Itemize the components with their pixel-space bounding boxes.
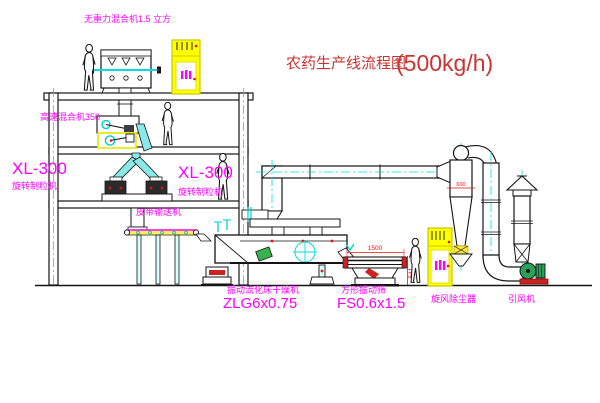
indicator-dot — [109, 187, 112, 190]
dryer-exhaust-duct — [256, 160, 452, 228]
gravity-free-mixer-machine — [90, 50, 161, 93]
label-belt-conveyor: 皮带输送机 — [136, 206, 181, 217]
indicator-dot — [110, 139, 113, 142]
conveyor-discharge — [196, 234, 211, 241]
worker-figure — [409, 238, 421, 282]
label-granulator-mid: 旋转制粒机 — [178, 186, 223, 197]
indicator-dot — [195, 45, 198, 48]
cabinet-indicator — [443, 261, 445, 270]
label-dryer-model: ZLG6x0.75 — [223, 295, 297, 312]
label-sieve-name: 方形振动筛 — [341, 284, 386, 295]
drawing-surface: 1500 541 600 — [0, 0, 600, 403]
cad-flow-diagram: 1500 541 600 — [0, 0, 600, 403]
indicator-dot — [120, 187, 123, 190]
cabinet-indicator — [181, 71, 183, 79]
label-cyclone: 旋风除尘器 — [431, 293, 476, 304]
indicator-dot — [161, 187, 164, 190]
indicator-dot — [150, 187, 153, 190]
high-speed-mixer-machine — [97, 100, 152, 151]
control-cabinet-right — [428, 228, 452, 286]
cyclone-inlet — [437, 161, 451, 183]
cabinet-indicator — [435, 261, 437, 270]
indicator-dot — [321, 270, 324, 273]
label-gravity-mixer: 无重力混合机1.5 立方 — [84, 13, 171, 24]
top-floor-beam — [44, 93, 253, 100]
indicator-dot — [271, 240, 274, 243]
label-high-speed-mixer: 高速混合机350 — [40, 111, 100, 122]
cabinet-indicator — [439, 260, 441, 270]
induced-draft-fan-machine — [520, 263, 548, 284]
cabinet-indicator — [185, 70, 187, 79]
dimension-1500: 1500 — [368, 245, 383, 252]
drawing-title: 农药生产线流程图 (500kg/h) — [286, 50, 493, 76]
indicator-dot — [193, 78, 196, 81]
label-dryer-name: 振动流化床干燥机 — [227, 284, 299, 295]
label-xl300-left: XL-300 — [12, 159, 67, 178]
label-xl300-mid: XL-300 — [178, 163, 233, 182]
fan-base — [520, 279, 548, 284]
label-fan: 引风机 — [508, 293, 535, 304]
rotary-granulator-machine — [102, 153, 172, 201]
conveyor-leg — [156, 235, 160, 284]
dimension-600: 600 — [456, 182, 465, 188]
cabinet-indicator — [189, 71, 191, 79]
cyclone-cone — [450, 197, 472, 246]
title-text: 农药生产线流程图 — [286, 55, 406, 72]
conveyor-leg — [137, 235, 141, 284]
belt-conveyor-machine — [124, 208, 211, 284]
vibrating-sieve-machine: 1500 541 — [343, 245, 415, 287]
label-granulator-left: 旋转制粒机 — [12, 180, 57, 191]
fluid-bed-dryer-machine — [201, 207, 358, 286]
fan-motor — [536, 264, 545, 278]
worker-figure — [83, 44, 95, 90]
label-sieve-model: FS0.6x1.5 — [337, 295, 405, 312]
control-cabinet-top — [172, 40, 200, 94]
stack-cap — [507, 176, 537, 190]
indicator-dot — [331, 240, 334, 243]
worker-figure — [162, 102, 173, 144]
title-capacity: (500kg/h) — [396, 50, 493, 76]
conveyor-leg — [175, 235, 179, 284]
indicator-dot — [447, 265, 450, 268]
indicator-dot — [448, 241, 451, 244]
